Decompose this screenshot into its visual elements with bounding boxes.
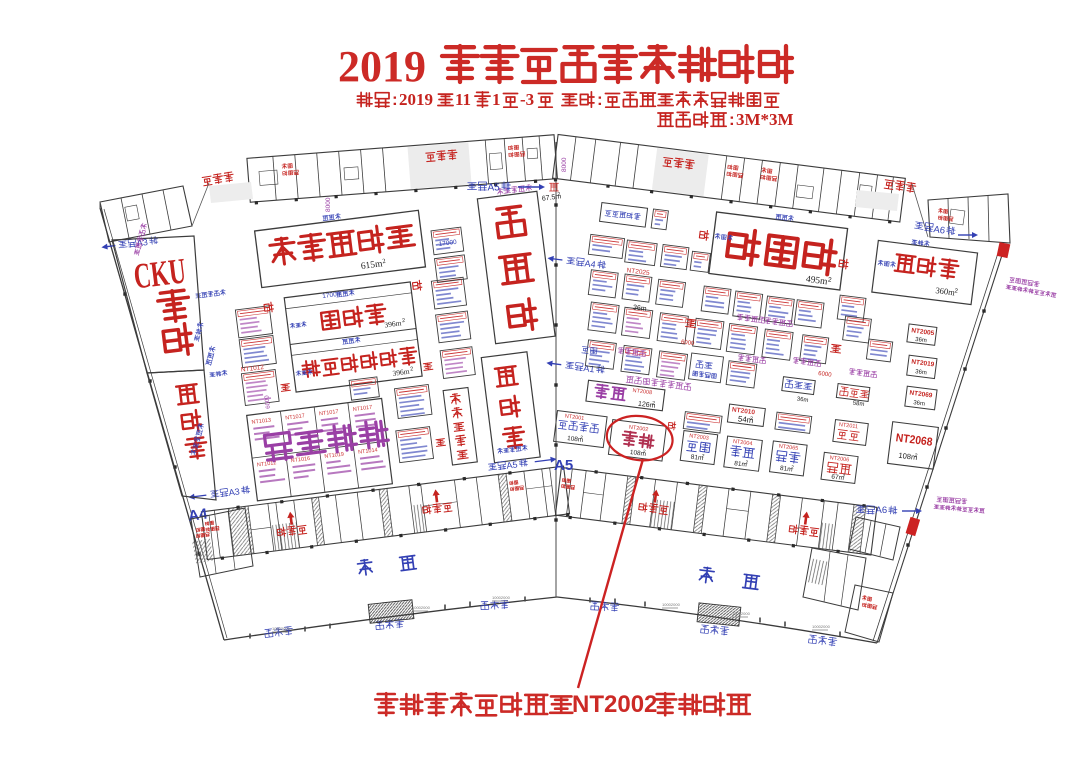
svg-text:A6: A6 <box>876 505 888 516</box>
svg-text:A3: A3 <box>228 486 240 497</box>
svg-text:11: 11 <box>455 90 471 109</box>
svg-text:3M*3M: 3M*3M <box>736 110 794 129</box>
svg-text:A4: A4 <box>187 505 209 525</box>
svg-text:10002000: 10002000 <box>662 602 681 607</box>
svg-text:10002000: 10002000 <box>732 611 751 616</box>
svg-text:A6: A6 <box>933 224 946 237</box>
svg-text::: : <box>392 90 398 109</box>
svg-text:NT2002: NT2002 <box>572 691 657 718</box>
svg-text:10002000: 10002000 <box>812 624 831 629</box>
svg-text:A4: A4 <box>584 258 596 269</box>
svg-text:-3: -3 <box>520 90 534 109</box>
svg-text:10002000: 10002000 <box>412 605 431 610</box>
svg-text:2019: 2019 <box>338 42 426 91</box>
svg-text:A5: A5 <box>488 183 501 194</box>
svg-text:1: 1 <box>492 90 501 109</box>
svg-text:10002000: 10002000 <box>492 595 511 600</box>
svg-text:A5: A5 <box>554 457 573 474</box>
svg-text:2019: 2019 <box>399 90 433 109</box>
svg-text:8000: 8000 <box>325 197 332 212</box>
svg-text:10002000: 10002000 <box>272 626 291 631</box>
svg-text:8000: 8000 <box>561 157 568 172</box>
svg-text:A5: A5 <box>506 459 518 470</box>
svg-text::: : <box>729 110 735 129</box>
svg-text::: : <box>597 90 603 109</box>
